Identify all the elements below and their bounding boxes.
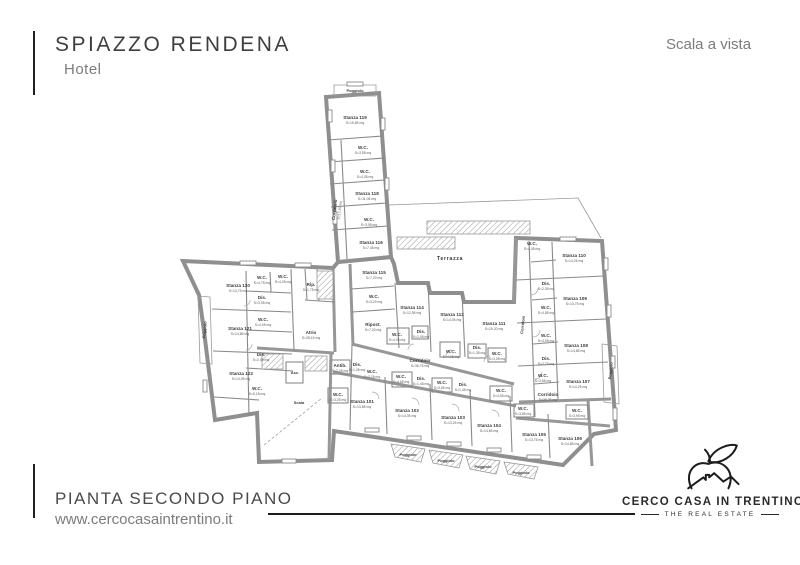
room-label: Poggiolo [346,88,364,93]
room-label: Stanza 111S=15,20 mq [482,321,506,331]
brand-block: CERCO CASA IN TRENTINO THE REAL ESTATE [622,443,798,518]
room-label: Stanza 114S=12,95 mq [400,305,424,315]
website-text: www.cercocasaintrentino.it [55,511,233,528]
room-label: Stanza 101S=13,85 mq [350,399,374,409]
brand-name: CERCO CASA IN TRENTINO [622,496,798,508]
room-label: Poggiolo [399,452,417,457]
room-label: Asc. [291,370,299,375]
room-label: Stanza 122S=13,05 mq [229,371,253,381]
tagline-dash-right [761,514,779,515]
room-label: CorridoioS=26,75 mq [538,392,559,402]
room-label: Stanza 102S=14,05 mq [395,408,419,418]
room-label: Terrazza [437,256,464,262]
room-label: Stanza 103S=13,25 mq [441,415,465,425]
footer-accent-bar [33,464,35,518]
room-label: Antib.S=3,05 mq [332,363,349,373]
room-label: Stanza 106S=14,85 mq [558,436,582,446]
bird-over-house-logo-icon [667,443,753,495]
room-label: Stanza 119S=15,85 mq [343,115,367,125]
tagline-text: THE REAL ESTATE [665,511,756,518]
footer-divider [268,513,635,515]
room-label: Scala [294,400,305,405]
room-label: CorridoioS=36,75 mq [410,358,431,368]
brand-tagline: THE REAL ESTATE [622,511,798,518]
room-label: Poggiolo [474,464,492,469]
tagline-dash-left [641,514,659,515]
room-label: Stanza 108S=14,85 mq [564,343,588,353]
room-label: Stanza 121S=14,85 mq [228,326,252,336]
room-label: Stanza 107S=14,25 mq [566,379,590,389]
room-label: Poggiolo [437,458,455,463]
room-label: Stanza 104S=14,65 mq [477,423,501,433]
plan-title: PIANTA SECONDO PIANO [55,489,293,509]
room-label: Ripost.S=7,20 mq [365,322,382,332]
room-label: Stanza 105S=13,75 mq [522,432,546,442]
flyer-page: SPIAZZO RENDENA Hotel Scala a vista [0,0,800,565]
room-label: Stanza 109S=13,75 mq [563,296,587,306]
room-label: Stanza 112S=14,05 mq [440,312,464,322]
small-stair [317,271,333,299]
room-label: Stanza 120S=13,75 mq [226,283,250,293]
room-label: Stanza 118S=11,05 mq [355,191,379,201]
room-label: Poggiolo [512,470,530,475]
room-label: Stanza 110S=14,25 mq [562,253,586,263]
